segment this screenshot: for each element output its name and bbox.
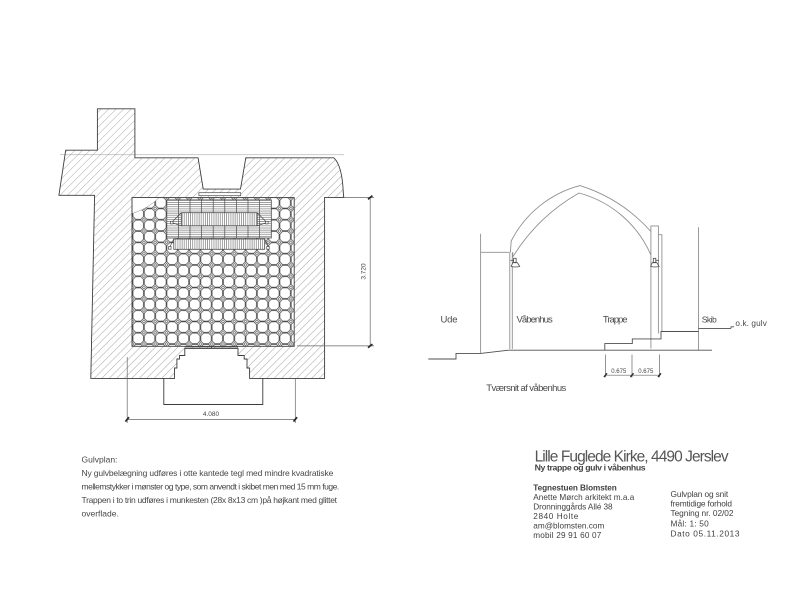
svg-text:Mål: 1: 50: Mål: 1: 50 [671,519,710,529]
svg-text:0.675: 0.675 [638,369,654,375]
svg-text:overflade.: overflade. [82,509,119,519]
svg-text:mobil 29 91 60 07: mobil 29 91 60 07 [533,531,601,540]
svg-text:Gulvplan:: Gulvplan: [82,455,118,465]
svg-text:Dronninggårds Allé 38: Dronninggårds Allé 38 [533,502,613,512]
svg-text:Våbenhus: Våbenhus [517,314,553,325]
svg-text:Trappen i to trin udføres i m: Trappen i to trin udføres i munkesten (2… [82,495,338,505]
svg-text:4.080: 4.080 [203,411,220,418]
svg-text:Tegnestuen Blomsten: Tegnestuen Blomsten [533,484,617,493]
svg-text:3.720: 3.720 [360,263,367,280]
svg-text:am@blomsten.com: am@blomsten.com [533,522,604,531]
svg-text:Ny gulvbelægning udføres i ott: Ny gulvbelægning udføres i otte kantede … [82,468,334,478]
svg-text:Dato 05.11.2013: Dato 05.11.2013 [671,529,740,539]
svg-text:mellemstykker i mønster og typ: mellemstykker i mønster og type, som anv… [82,482,340,492]
svg-text:Ny trappe og gulv i våbenhus: Ny trappe og gulv i våbenhus [535,463,646,473]
svg-text:Skib: Skib [702,314,717,324]
svg-text:Tegning nr. 02/02: Tegning nr. 02/02 [671,508,734,518]
svg-text:o.k. gulv: o.k. gulv [735,319,767,328]
svg-text:Tværsnit af våbenhus: Tværsnit af våbenhus [486,383,566,394]
svg-text:Ude: Ude [441,314,458,325]
svg-text:2840 Holte: 2840 Holte [533,512,578,521]
svg-text:Anette Mørch arkitekt m.a.a: Anette Mørch arkitekt m.a.a [533,493,634,502]
svg-text:fremtidige forhold: fremtidige forhold [671,498,733,508]
svg-text:0.675: 0.675 [611,369,627,375]
svg-text:Trappe: Trappe [603,314,628,325]
